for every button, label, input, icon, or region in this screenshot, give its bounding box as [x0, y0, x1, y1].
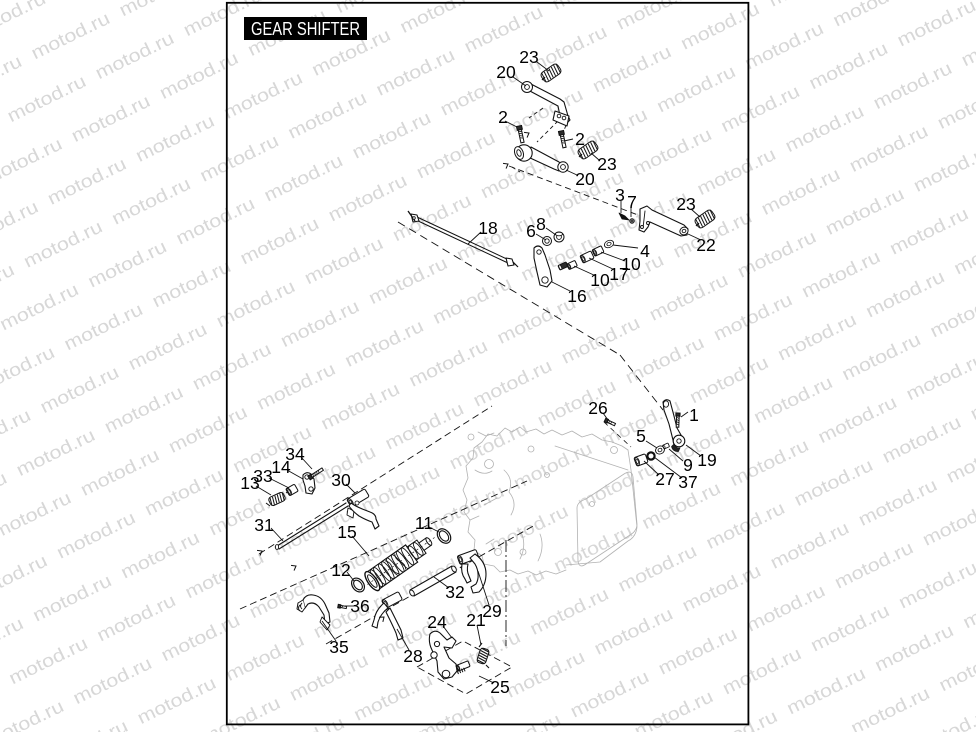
svg-text:motod.ru: motod.ru [262, 712, 347, 732]
svg-text:motod.ru: motod.ru [277, 296, 362, 351]
svg-text:motod.ru: motod.ru [774, 309, 859, 364]
svg-text:motod.ru: motod.ru [165, 402, 250, 457]
svg-text:25: 25 [490, 677, 509, 697]
svg-text:26: 26 [588, 398, 607, 418]
svg-text:motod.ru: motod.ru [415, 689, 500, 732]
svg-text:motod.ru: motod.ru [20, 216, 105, 271]
svg-text:37: 37 [678, 472, 697, 492]
svg-text:motod.ru: motod.ru [85, 236, 170, 291]
svg-text:motod.ru: motod.ru [373, 45, 458, 100]
svg-text:19: 19 [697, 450, 716, 470]
svg-text:motod.ru: motod.ru [558, 312, 643, 367]
svg-text:motod.ru: motod.ru [149, 256, 234, 311]
svg-text:GEAR SHIFTER: GEAR SHIFTER [251, 19, 360, 39]
svg-text:motod.ru: motod.ru [782, 101, 867, 156]
svg-text:motod.ru: motod.ru [397, 0, 482, 37]
svg-text:motod.ru: motod.ru [118, 527, 203, 582]
svg-text:motod.ru: motod.ru [791, 455, 876, 510]
svg-text:motod.ru: motod.ru [0, 550, 50, 605]
svg-text:motod.ru: motod.ru [677, 0, 762, 54]
svg-text:motod.ru: motod.ru [653, 61, 738, 116]
svg-text:motod.ru: motod.ru [879, 412, 964, 467]
svg-text:motod.ru: motod.ru [92, 28, 177, 83]
svg-text:motod.ru: motod.ru [29, 570, 114, 625]
svg-text:motod.ru: motod.ru [943, 432, 976, 487]
svg-text:motod.ru: motod.ru [960, 577, 976, 632]
svg-text:motod.ru: motod.ru [13, 425, 98, 480]
svg-text:motod.ru: motod.ru [591, 603, 676, 658]
svg-text:motod.ru: motod.ru [686, 352, 771, 407]
svg-text:motod.ru: motod.ru [46, 716, 131, 732]
svg-text:motod.ru: motod.ru [430, 273, 515, 328]
svg-text:12: 12 [331, 560, 350, 580]
svg-text:motod.ru: motod.ru [783, 663, 868, 718]
svg-text:motod.ru: motod.ru [350, 670, 435, 725]
svg-text:2: 2 [575, 129, 585, 149]
svg-text:motod.ru: motod.ru [951, 223, 976, 278]
svg-text:motod.ru: motod.ru [318, 378, 403, 433]
svg-text:motod.ru: motod.ru [589, 41, 674, 96]
svg-text:motod.ru: motod.ru [261, 150, 346, 205]
svg-text:motod.ru: motod.ru [413, 127, 498, 182]
svg-text:4: 4 [640, 241, 650, 261]
svg-text:motod.ru: motod.ru [0, 0, 49, 43]
svg-text:6: 6 [526, 221, 536, 241]
svg-text:motod.ru: motod.ru [727, 435, 812, 490]
svg-text:motod.ru: motod.ru [101, 382, 186, 437]
svg-text:motod.ru: motod.ru [341, 316, 426, 371]
svg-text:motod.ru: motod.ru [567, 666, 652, 721]
svg-text:motod.ru: motod.ru [286, 650, 371, 705]
svg-text:motod.ru: motod.ru [839, 329, 924, 384]
svg-text:2: 2 [498, 107, 508, 127]
svg-text:motod.ru: motod.ru [349, 107, 434, 162]
svg-text:motod.ru: motod.ru [830, 0, 915, 30]
svg-text:motod.ru: motod.ru [551, 521, 636, 576]
svg-text:17: 17 [609, 264, 628, 284]
svg-text:motod.ru: motod.ru [886, 203, 971, 258]
svg-text:motod.ru: motod.ru [758, 164, 843, 219]
svg-text:motod.ru: motod.ru [0, 279, 82, 334]
svg-text:motod.ru: motod.ru [0, 696, 67, 732]
svg-text:motod.ru: motod.ru [61, 299, 146, 354]
svg-text:motod.ru: motod.ru [158, 610, 243, 665]
svg-text:motod.ru: motod.ru [77, 445, 162, 500]
svg-text:18: 18 [478, 218, 497, 238]
svg-text:motod.ru: motod.ru [0, 405, 34, 460]
svg-text:motod.ru: motod.ru [68, 91, 153, 146]
svg-text:motod.ru: motod.ru [719, 643, 804, 698]
svg-text:1: 1 [689, 405, 699, 425]
svg-text:motod.ru: motod.ru [37, 362, 122, 417]
svg-text:motod.ru: motod.ru [4, 71, 89, 126]
svg-text:motod.ru: motod.ru [927, 286, 976, 341]
svg-text:motod.ru: motod.ru [831, 537, 916, 592]
svg-text:motod.ru: motod.ru [863, 266, 948, 321]
svg-text:motod.ru: motod.ru [0, 196, 41, 251]
svg-text:motod.ru: motod.ru [189, 339, 274, 394]
svg-text:motod.ru: motod.ru [365, 253, 450, 308]
svg-text:motod.ru: motod.ru [301, 233, 386, 288]
svg-text:motod.ru: motod.ru [751, 372, 836, 427]
svg-text:motod.ru: motod.ru [198, 693, 283, 732]
svg-text:motod.ru: motod.ru [958, 15, 976, 70]
svg-text:motod.ru: motod.ru [220, 68, 305, 123]
svg-text:motod.ru: motod.ru [222, 630, 307, 685]
svg-text:motod.ru: motod.ru [622, 332, 707, 387]
svg-text:motod.ru: motod.ru [679, 561, 764, 616]
svg-text:motod.ru: motod.ru [134, 673, 219, 728]
svg-text:motod.ru: motod.ru [389, 190, 474, 245]
svg-text:motod.ru: motod.ru [846, 121, 931, 176]
svg-text:motod.ru: motod.ru [895, 557, 976, 612]
svg-text:motod.ru: motod.ru [446, 418, 531, 473]
svg-text:35: 35 [329, 637, 348, 657]
svg-text:7: 7 [627, 192, 637, 212]
svg-text:motod.ru: motod.ru [806, 38, 891, 93]
svg-text:27: 27 [655, 469, 674, 489]
svg-text:motod.ru: motod.ru [807, 600, 892, 655]
svg-text:motod.ru: motod.ru [734, 227, 819, 282]
svg-text:motod.ru: motod.ru [718, 81, 803, 136]
svg-text:motod.ru: motod.ru [894, 0, 976, 50]
svg-text:motod.ru: motod.ru [503, 646, 588, 701]
svg-text:motod.ru: motod.ru [694, 144, 779, 199]
svg-text:motod.ru: motod.ru [213, 276, 298, 331]
svg-text:13: 13 [240, 473, 259, 493]
svg-text:motod.ru: motod.ru [743, 580, 828, 635]
svg-text:motod.ru: motod.ru [870, 58, 955, 113]
svg-text:23: 23 [597, 154, 616, 174]
svg-text:motod.ru: motod.ru [695, 706, 780, 732]
svg-text:motod.ru: motod.ru [967, 369, 976, 424]
svg-text:32: 32 [445, 582, 464, 602]
svg-text:motod.ru: motod.ru [848, 683, 933, 732]
svg-text:3: 3 [615, 185, 625, 205]
svg-text:motod.ru: motod.ru [510, 438, 595, 493]
svg-text:motod.ru: motod.ru [710, 289, 795, 344]
svg-text:14: 14 [271, 457, 291, 477]
svg-text:10: 10 [590, 270, 610, 290]
svg-text:motod.ru: motod.ru [494, 293, 579, 348]
svg-text:motod.ru: motod.ru [815, 392, 900, 447]
svg-text:motod.ru: motod.ru [742, 18, 827, 73]
svg-text:30: 30 [331, 470, 351, 490]
svg-text:motod.ru: motod.ru [237, 213, 322, 268]
svg-text:motod.ru: motod.ru [182, 547, 267, 602]
svg-text:motod.ru: motod.ru [94, 590, 179, 645]
svg-text:motod.ru: motod.ru [613, 0, 698, 34]
svg-text:motod.ru: motod.ru [919, 494, 976, 549]
svg-text:23: 23 [676, 194, 695, 214]
svg-text:8: 8 [536, 214, 546, 234]
svg-text:motod.ru: motod.ru [246, 567, 331, 622]
svg-text:motod.ru: motod.ru [28, 8, 113, 63]
svg-text:motod.ru: motod.ru [141, 464, 226, 519]
svg-text:motod.ru: motod.ru [703, 498, 788, 553]
svg-text:motod.ru: motod.ru [470, 355, 555, 410]
svg-text:motod.ru: motod.ru [615, 541, 700, 596]
svg-text:16: 16 [567, 286, 586, 306]
svg-text:motod.ru: motod.ru [173, 193, 258, 248]
svg-text:20: 20 [575, 169, 595, 189]
svg-text:motod.ru: motod.ru [253, 359, 338, 414]
svg-text:motod.ru: motod.ru [767, 518, 852, 573]
svg-text:20: 20 [496, 62, 516, 82]
svg-text:motod.ru: motod.ru [903, 349, 976, 404]
svg-text:motod.ru: motod.ru [132, 111, 217, 166]
svg-text:motod.ru: motod.ru [325, 170, 410, 225]
svg-text:motod.ru: motod.ru [406, 336, 491, 391]
svg-text:22: 22 [696, 235, 715, 255]
svg-text:24: 24 [427, 612, 447, 632]
svg-text:motod.ru: motod.ru [822, 184, 907, 239]
svg-text:motod.ru: motod.ru [125, 319, 210, 374]
svg-text:11: 11 [415, 513, 433, 533]
svg-text:motod.ru: motod.ru [912, 703, 976, 732]
svg-text:31: 31 [254, 515, 273, 535]
svg-text:5: 5 [636, 426, 646, 446]
svg-text:motod.ru: motod.ru [655, 623, 740, 678]
svg-text:motod.ru: motod.ru [6, 633, 91, 688]
svg-text:motod.ru: motod.ru [197, 130, 282, 185]
svg-text:motod.ru: motod.ru [0, 51, 25, 106]
svg-text:motod.ru: motod.ru [53, 507, 138, 562]
svg-text:21: 21 [466, 610, 485, 630]
svg-text:motod.ru: motod.ru [934, 78, 976, 133]
svg-text:motod.ru: motod.ru [0, 613, 27, 668]
svg-text:motod.ru: motod.ru [358, 461, 443, 516]
svg-text:motod.ru: motod.ru [0, 342, 58, 397]
svg-text:15: 15 [337, 522, 356, 542]
svg-text:motod.ru: motod.ru [646, 269, 731, 324]
svg-text:motod.ru: motod.ru [630, 124, 715, 179]
svg-text:motod.ru: motod.ru [855, 475, 940, 530]
svg-text:motod.ru: motod.ru [0, 488, 74, 543]
svg-text:motod.ru: motod.ru [382, 398, 467, 453]
svg-text:23: 23 [519, 47, 538, 67]
svg-text:motod.ru: motod.ru [798, 246, 883, 301]
svg-text:motod.ru: motod.ru [872, 620, 957, 675]
svg-text:36: 36 [350, 596, 369, 616]
svg-text:motod.ru: motod.ru [527, 584, 612, 639]
svg-text:motod.ru: motod.ru [479, 709, 564, 732]
svg-text:motod.ru: motod.ru [0, 259, 17, 314]
svg-text:motod.ru: motod.ru [910, 141, 976, 196]
svg-text:motod.ru: motod.ru [156, 48, 241, 103]
svg-text:motod.ru: motod.ru [108, 173, 193, 228]
svg-text:motod.ru: motod.ru [70, 653, 155, 708]
svg-text:motod.ru: motod.ru [0, 134, 65, 189]
svg-text:motod.ru: motod.ru [44, 154, 129, 209]
svg-text:motod.ru: motod.ru [936, 640, 976, 695]
svg-text:28: 28 [403, 646, 422, 666]
svg-text:motod.ru: motod.ru [285, 87, 370, 142]
